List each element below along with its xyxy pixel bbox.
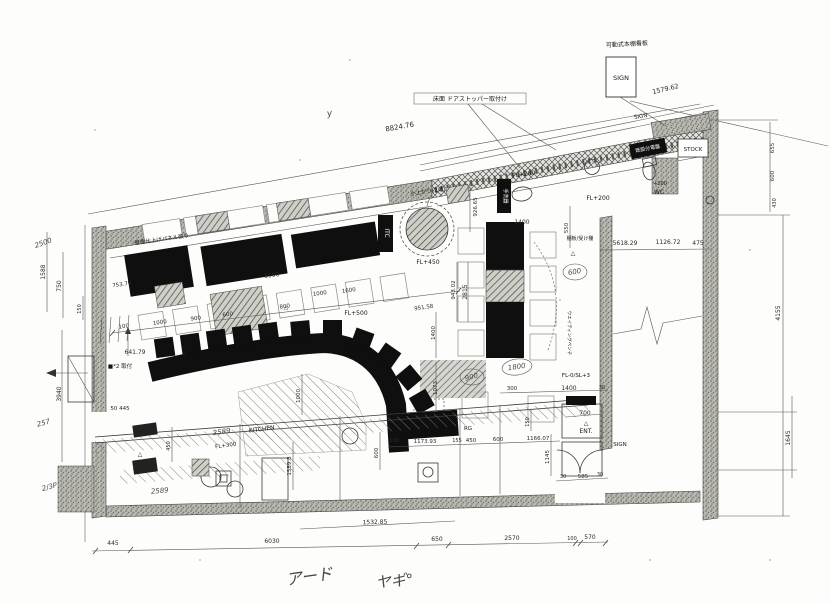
annotation-text: 100 [567, 536, 577, 542]
annotation-text: 570 [584, 534, 596, 541]
scanned-floorplan-page: 可動式本棚看板SIGN1579.62SIGN8824.76床面 ドアストッパー取… [0, 0, 830, 603]
door-swing-arc [557, 450, 580, 473]
annotation-text: 2815 [462, 284, 469, 299]
annotation-text: WC [654, 189, 664, 196]
annotation-text: 1400 [561, 385, 576, 392]
annotation-text: FL+200 [586, 195, 609, 202]
annotation-text: 床面 ドアストッパー取付け [433, 95, 507, 103]
annotation-text: 1000 [296, 389, 302, 403]
annotation-text: 550 [564, 222, 570, 233]
annotation-text: 475 [692, 240, 704, 247]
annotation-text: 可動式本棚看板 [606, 39, 648, 49]
annotation-text: 8824.76 [385, 120, 415, 133]
annotation-text: SIGN [613, 74, 629, 82]
annotation-text: 1173.93 [414, 439, 437, 445]
annotation-text: 300 [507, 386, 518, 392]
wash-basin [511, 186, 533, 203]
annotation-text: 手洗器 [502, 188, 509, 203]
annotation-text: ウエイティングベンチ [566, 311, 573, 356]
annotation-text: 257 [36, 417, 52, 428]
annotation-text: 753.79 [112, 281, 132, 290]
annotation-text: FL+450 [416, 259, 439, 266]
annotation-text: 2570 [504, 535, 519, 542]
annotation-text: 1400 [514, 219, 529, 226]
annotation-text: 1126.72 [656, 239, 681, 246]
direction-arrow [46, 369, 56, 377]
annotation-text: 600 [567, 267, 582, 277]
entrance-wall-gap [555, 489, 605, 503]
annotation-text: 155 [452, 438, 462, 444]
annotation-text: 900 [190, 315, 202, 322]
annotation-text: +200 [653, 181, 667, 187]
annotation-text: アード [285, 564, 335, 590]
annotation-text: 1532.85 [362, 519, 387, 527]
annotation-text: 445 [107, 540, 119, 547]
right-wall [703, 110, 718, 520]
annotation-text: 951.58 [414, 304, 434, 313]
annotation-text: ヤギ° [375, 570, 414, 591]
annotation-text: 50 445 [110, 406, 130, 412]
annotation-text: 150 [77, 304, 83, 314]
annotation-text: 1588 [40, 264, 47, 279]
annotation-text: 100 [389, 438, 399, 444]
annotation-text: 2589 [151, 486, 170, 496]
annotation-text: △ [571, 250, 576, 257]
break-line [613, 307, 702, 344]
annotation-text: 1166.07 [527, 436, 550, 442]
annotation-text: △ [584, 420, 589, 427]
hatched-table [154, 282, 185, 308]
annotation-text: 926.65 [473, 197, 479, 217]
annotation-text: 700 [579, 410, 591, 417]
annotation-text: 5618.29 [613, 240, 638, 247]
annotation-text: 450 [466, 438, 477, 444]
entrance-bench [566, 396, 596, 405]
annotation-text: 3940 [56, 386, 63, 401]
annotation-text: y [325, 109, 334, 120]
annotation-text: SIGN [613, 442, 627, 448]
annotation-text: 1145 [545, 450, 551, 464]
annotation-text: 30 [560, 474, 566, 480]
annotation-text: 1579.62 [652, 82, 680, 96]
annotation-text: ITC [383, 228, 390, 237]
annotation-text: 943.02 [451, 280, 457, 299]
annotation-text: 5500 [264, 271, 280, 280]
annotation-text: ■*2 取付 [108, 362, 133, 370]
annotation-text: FL+500 [344, 310, 367, 317]
annotation-text: 585 [578, 474, 589, 480]
annotation-text: 641.79 [125, 349, 146, 356]
annotation-text: 1400 [431, 326, 437, 340]
annotation-text: 4155 [775, 305, 782, 320]
annotation-text: 150 [525, 417, 531, 427]
annotation-text: 450 [166, 441, 172, 451]
annotation-text: 1073 [433, 381, 439, 395]
annotation-text: 600 [770, 170, 776, 181]
annotation-text: 1559.8 [287, 456, 293, 476]
floorplan-drawing: 可動式本棚看板SIGN1579.62SIGN8824.76床面 ドアストッパー取… [0, 0, 830, 603]
door-swing-arc [580, 450, 603, 473]
annotation-text: 655 [770, 142, 776, 153]
annotation-text: 1000 [153, 319, 168, 327]
annotation-text: 2500 [34, 236, 54, 250]
annotation-text: FL-0/SL+3 [562, 373, 591, 379]
annotation-text: △ [138, 451, 143, 458]
annotation-text: 650 [431, 536, 443, 543]
annotation-text: 430 [772, 198, 778, 208]
annotation-text: 30 [599, 385, 605, 391]
annotation-text: 2/3P [41, 481, 59, 493]
annotation-text: ENT. [579, 428, 592, 435]
annotation-text: 600 [493, 437, 504, 443]
left-door-gap [90, 412, 108, 442]
annotation-text: 750 [56, 280, 63, 292]
annotation-text: 600 [374, 447, 380, 458]
annotation-text: STOCK [684, 147, 703, 153]
annotation-text: 6030 [264, 538, 279, 545]
annotation-text: RG [464, 426, 472, 432]
annotation-text: 棚板/受け棚 [567, 235, 594, 242]
annotation-text: 30 [597, 472, 603, 478]
round-table [400, 197, 454, 256]
annotation-text: SIGN [634, 113, 648, 121]
annotation-text: 1800 [507, 362, 526, 372]
annotation-text: 1645 [785, 430, 792, 445]
bottom-wall [106, 491, 700, 517]
